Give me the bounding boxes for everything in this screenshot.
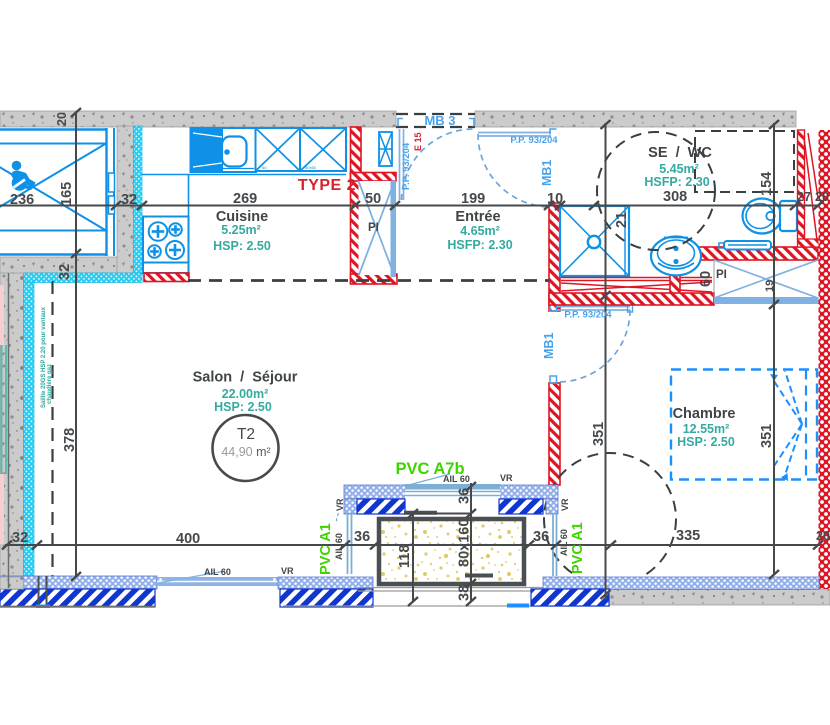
svg-text:20: 20 bbox=[55, 112, 69, 126]
svg-text:E 15: E 15 bbox=[413, 132, 423, 151]
svg-text:HSFP: 2.30: HSFP: 2.30 bbox=[447, 238, 512, 252]
svg-text:44,90 m²: 44,90 m² bbox=[221, 445, 270, 459]
svg-text:Entrée: Entrée bbox=[455, 209, 500, 225]
svg-text:VR: VR bbox=[335, 498, 345, 511]
svg-text:308: 308 bbox=[663, 189, 687, 205]
svg-text:5.25m²: 5.25m² bbox=[221, 223, 261, 237]
svg-text:38: 38 bbox=[457, 585, 473, 601]
svg-text:20: 20 bbox=[816, 529, 830, 543]
svg-text:AIL 60: AIL 60 bbox=[559, 529, 569, 556]
svg-text:165: 165 bbox=[59, 182, 75, 206]
svg-text:AIL 60: AIL 60 bbox=[443, 474, 470, 484]
svg-text:PI: PI bbox=[716, 269, 727, 281]
svg-text:236: 236 bbox=[10, 192, 34, 208]
svg-text:HSP: 2.50: HSP: 2.50 bbox=[677, 435, 735, 449]
svg-text:60: 60 bbox=[262, 165, 267, 170]
svg-text:AIL 60: AIL 60 bbox=[204, 567, 231, 577]
svg-text:T2: T2 bbox=[237, 426, 255, 443]
svg-text:TYPE 2: TYPE 2 bbox=[298, 177, 356, 194]
svg-text:MB1: MB1 bbox=[540, 160, 554, 186]
svg-text:32: 32 bbox=[12, 530, 28, 546]
svg-text:60: 60 bbox=[698, 271, 714, 287]
svg-text:VR: VR bbox=[500, 473, 513, 483]
svg-text:MB1: MB1 bbox=[542, 333, 556, 359]
svg-text:5.45m²: 5.45m² bbox=[659, 162, 699, 176]
svg-text:351: 351 bbox=[591, 422, 607, 446]
svg-text:P.P. 93/204: P.P. 93/204 bbox=[401, 142, 412, 190]
svg-text:SE / WC: SE / WC bbox=[648, 145, 712, 161]
svg-text:AIL 60: AIL 60 bbox=[334, 533, 344, 560]
svg-text:335: 335 bbox=[676, 528, 700, 544]
svg-text:36: 36 bbox=[533, 529, 549, 545]
svg-text:378: 378 bbox=[62, 428, 78, 452]
svg-text:VR: VR bbox=[281, 566, 294, 576]
svg-text:19: 19 bbox=[764, 280, 776, 292]
svg-text:27: 27 bbox=[797, 190, 811, 204]
svg-text:4.65m²: 4.65m² bbox=[460, 224, 500, 238]
svg-text:P.P. 93/204: P.P. 93/204 bbox=[510, 135, 558, 146]
svg-text:VR: VR bbox=[560, 498, 570, 511]
svg-text:36: 36 bbox=[354, 529, 370, 545]
svg-text:21: 21 bbox=[614, 212, 630, 228]
svg-text:50: 50 bbox=[365, 191, 381, 207]
svg-text:PVC A1: PVC A1 bbox=[318, 523, 334, 575]
svg-text:Salon / Séjour: Salon / Séjour bbox=[193, 370, 298, 386]
svg-text:HSP: 2.50: HSP: 2.50 bbox=[214, 400, 272, 414]
svg-text:20: 20 bbox=[815, 190, 829, 204]
svg-text:MB 3: MB 3 bbox=[424, 113, 455, 128]
svg-text:P.P. 93/204: P.P. 93/204 bbox=[564, 310, 612, 321]
svg-text:199: 199 bbox=[461, 191, 485, 207]
svg-text:Chambre: Chambre bbox=[673, 406, 736, 422]
svg-text:351: 351 bbox=[759, 424, 775, 448]
svg-text:22.00m²: 22.00m² bbox=[222, 387, 269, 401]
svg-text:PI: PI bbox=[368, 222, 379, 234]
svg-text:PVC A1: PVC A1 bbox=[570, 522, 586, 574]
svg-text:32: 32 bbox=[57, 264, 73, 280]
svg-text:60x60: 60x60 bbox=[305, 165, 317, 170]
svg-text:36: 36 bbox=[457, 488, 473, 504]
svg-text:80x160: 80x160 bbox=[457, 519, 473, 567]
svg-text:269: 269 bbox=[233, 191, 257, 207]
svg-text:32: 32 bbox=[121, 192, 137, 208]
svg-text:400: 400 bbox=[176, 531, 200, 547]
svg-text:154: 154 bbox=[759, 172, 775, 196]
svg-text:HSFP: 2.30: HSFP: 2.30 bbox=[644, 175, 709, 189]
svg-text:10: 10 bbox=[547, 191, 563, 207]
svg-text:chaudière gaz: chaudière gaz bbox=[47, 364, 53, 404]
svg-text:12.55m²: 12.55m² bbox=[683, 422, 730, 436]
svg-text:118: 118 bbox=[397, 545, 413, 568]
svg-text:HSP: 2.50: HSP: 2.50 bbox=[213, 239, 271, 253]
